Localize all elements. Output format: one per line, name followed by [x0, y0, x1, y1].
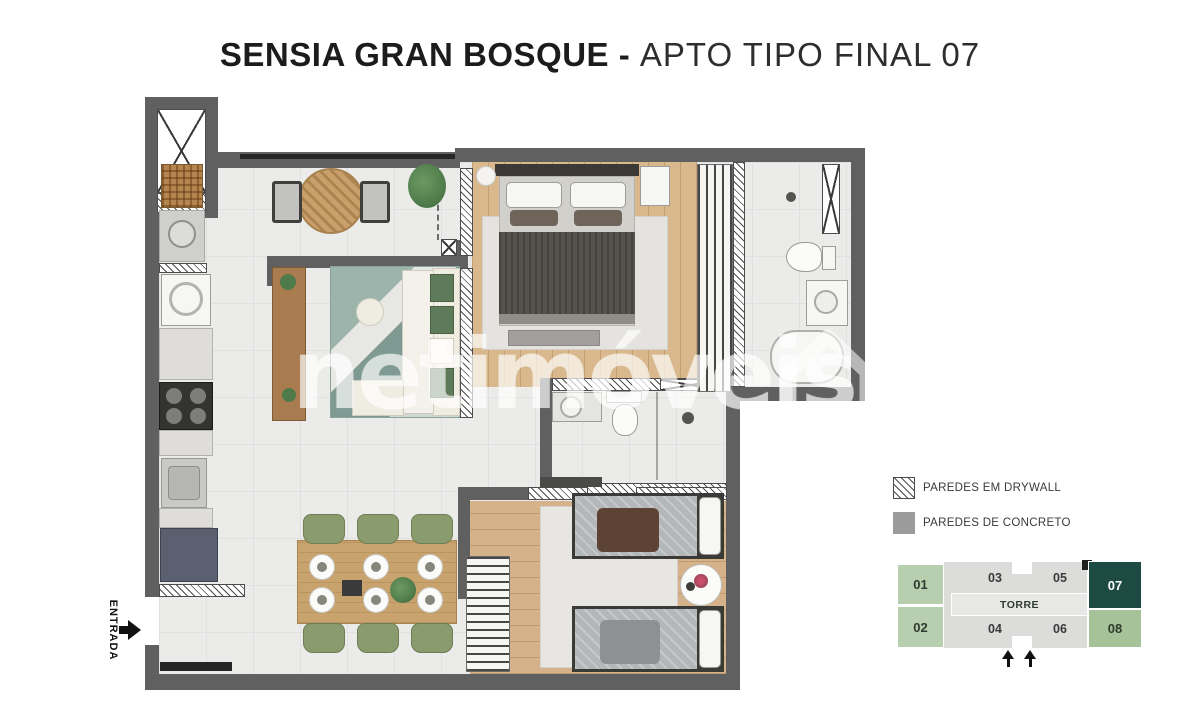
- unit-03-label: 03: [988, 571, 1002, 585]
- key-plan-unit-03: 03: [975, 571, 1015, 585]
- torre-label: TORRE: [1000, 599, 1039, 611]
- floor-plan-page: { "title": { "project_bold": "SENSIA GRA…: [0, 0, 1200, 720]
- unit-05-label: 05: [1053, 571, 1067, 585]
- key-plan-notch-bottom: [1012, 636, 1032, 648]
- key-plan-arrow-1: [1002, 650, 1014, 667]
- key-plan-unit-06: 06: [1040, 622, 1080, 636]
- key-plan-unit-05: 05: [1040, 571, 1080, 585]
- key-plan-unit-07-highlighted: 07: [1089, 562, 1141, 608]
- key-plan-arrow-2: [1024, 650, 1036, 667]
- key-plan-unit-08: 08: [1089, 610, 1141, 647]
- key-plan-unit-04: 04: [975, 622, 1015, 636]
- key-plan-unit-01: 01: [898, 565, 943, 604]
- unit-02-label: 02: [913, 620, 927, 635]
- key-plan-torre: TORRE: [952, 594, 1087, 615]
- unit-08-label: 08: [1108, 621, 1122, 636]
- unit-01-label: 01: [913, 577, 927, 592]
- key-plan-unit-02: 02: [898, 607, 943, 647]
- unit-06-label: 06: [1053, 622, 1067, 636]
- key-plan: 01 02 03 05 TORRE 04 06 07 08: [0, 0, 1200, 720]
- unit-04-label: 04: [988, 622, 1002, 636]
- key-plan-notch-top: [1012, 562, 1032, 574]
- unit-07-label: 07: [1108, 578, 1122, 593]
